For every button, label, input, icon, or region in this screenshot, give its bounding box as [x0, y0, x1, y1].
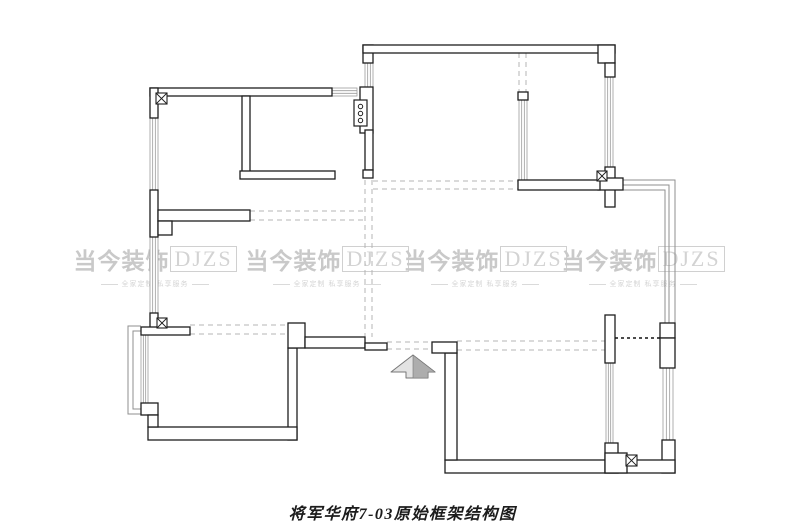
window — [605, 77, 613, 167]
wall — [445, 460, 675, 473]
balcony-outline — [623, 185, 669, 323]
wall — [660, 323, 675, 338]
balcony-outline — [128, 326, 141, 414]
window — [606, 363, 613, 443]
window — [365, 63, 373, 87]
wall — [605, 315, 615, 363]
wall — [150, 190, 158, 237]
wall — [518, 92, 528, 100]
window — [150, 118, 158, 190]
wall — [150, 88, 332, 96]
wall — [598, 45, 615, 63]
drawing-title: 将军华府7-03原始框架结构图 — [0, 500, 805, 524]
window — [663, 368, 673, 440]
wall — [363, 45, 615, 53]
wall — [605, 453, 627, 473]
wall — [432, 342, 457, 353]
window — [332, 88, 357, 96]
fixture-circle — [358, 118, 362, 122]
wall — [288, 323, 305, 348]
floor-plan-canvas: 当今装饰DJZS全家定制 私享服务当今装饰DJZS全家定制 私享服务当今装饰DJ… — [0, 0, 805, 532]
wall — [518, 180, 600, 190]
window — [519, 100, 527, 180]
wall — [605, 63, 615, 77]
wall — [158, 210, 250, 221]
wall — [363, 170, 373, 178]
balcony-outline — [623, 180, 675, 323]
wall — [445, 353, 457, 460]
wall — [148, 427, 297, 440]
wall — [240, 171, 335, 179]
fixture-circle — [358, 111, 362, 115]
fixture-circle — [358, 104, 362, 108]
wall — [242, 96, 250, 173]
window — [150, 237, 158, 313]
balcony-outline — [133, 331, 141, 409]
window — [141, 335, 148, 403]
wall — [365, 343, 387, 350]
floor-plan-svg — [0, 0, 805, 532]
wall — [660, 338, 675, 368]
wall — [141, 403, 158, 415]
entry-arrow-shade — [413, 355, 435, 378]
wall — [148, 415, 158, 427]
wall — [288, 348, 297, 440]
wall — [158, 221, 172, 235]
balcony-outline — [623, 190, 665, 323]
wall — [365, 130, 373, 170]
wall — [305, 337, 365, 348]
